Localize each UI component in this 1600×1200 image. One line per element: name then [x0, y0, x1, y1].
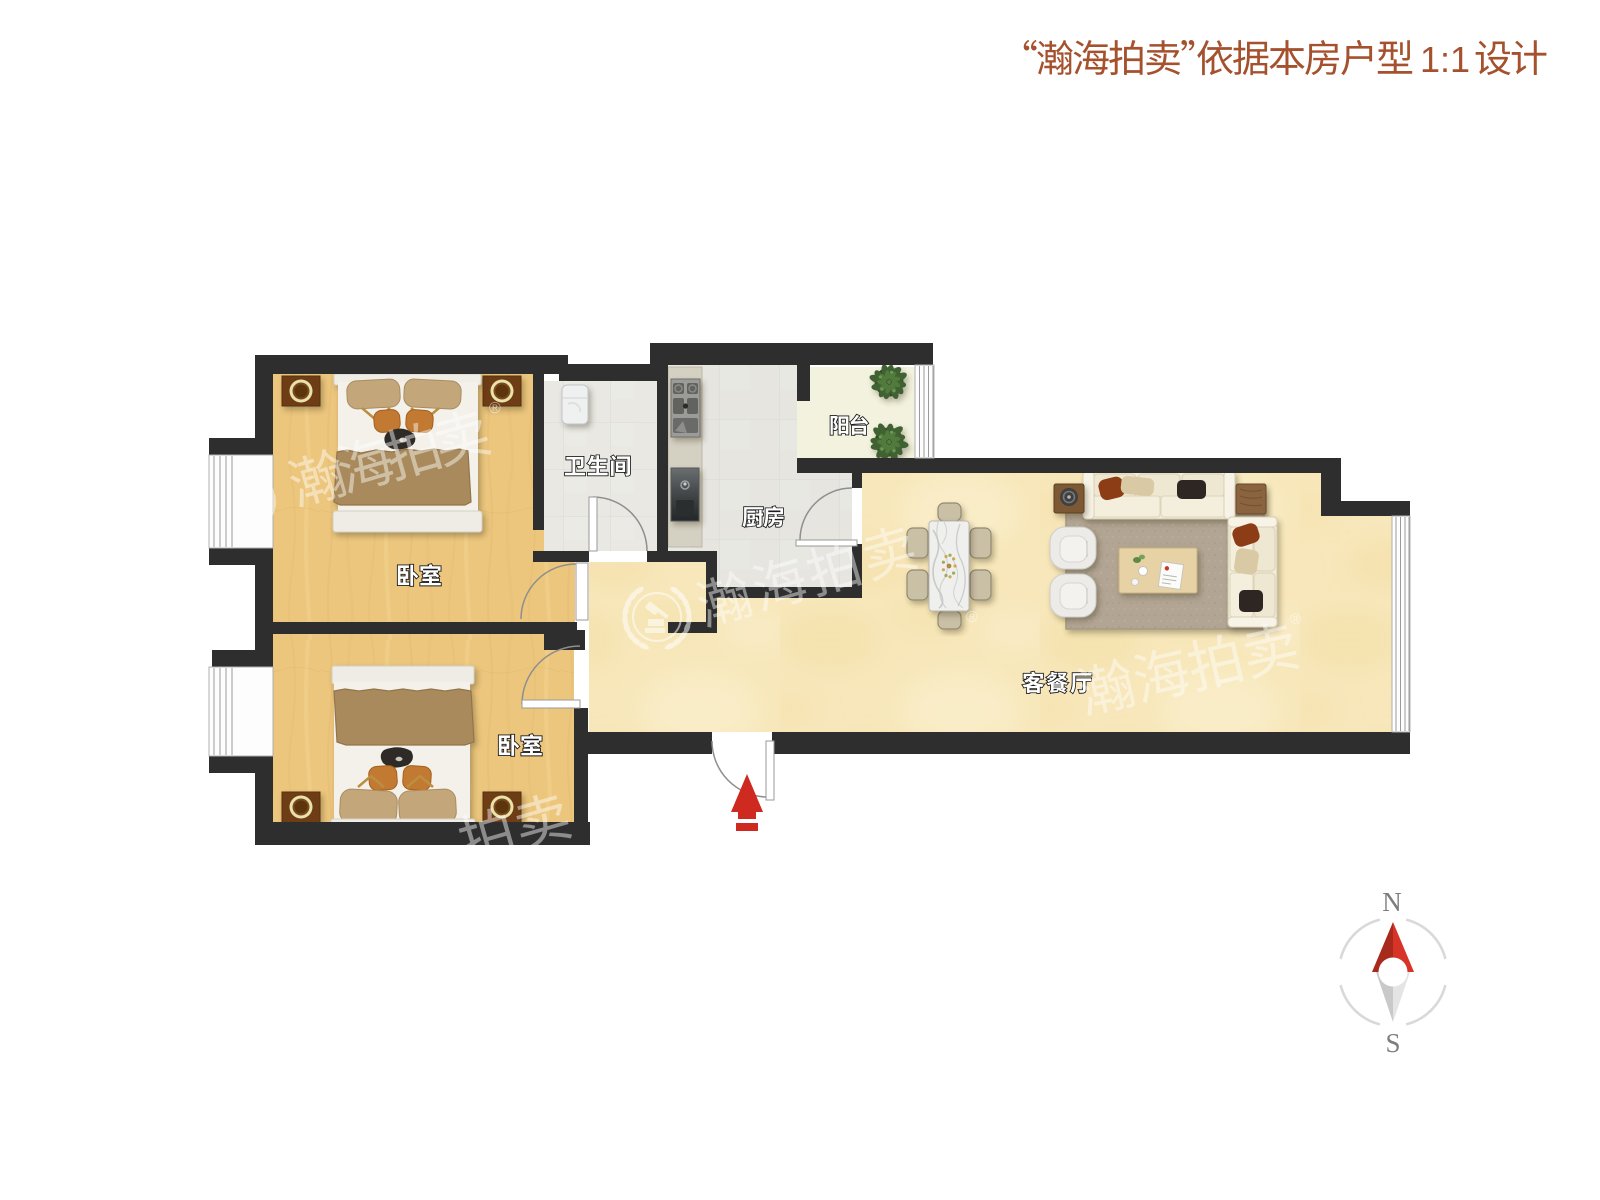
svg-text:®: ® — [1290, 611, 1301, 628]
svg-text:®: ® — [489, 400, 501, 417]
svg-text:1:1: 1:1 — [1420, 39, 1470, 80]
svg-text:®: ® — [966, 609, 978, 626]
svg-text:S: S — [1385, 1028, 1400, 1058]
svg-text:N: N — [1382, 887, 1402, 917]
